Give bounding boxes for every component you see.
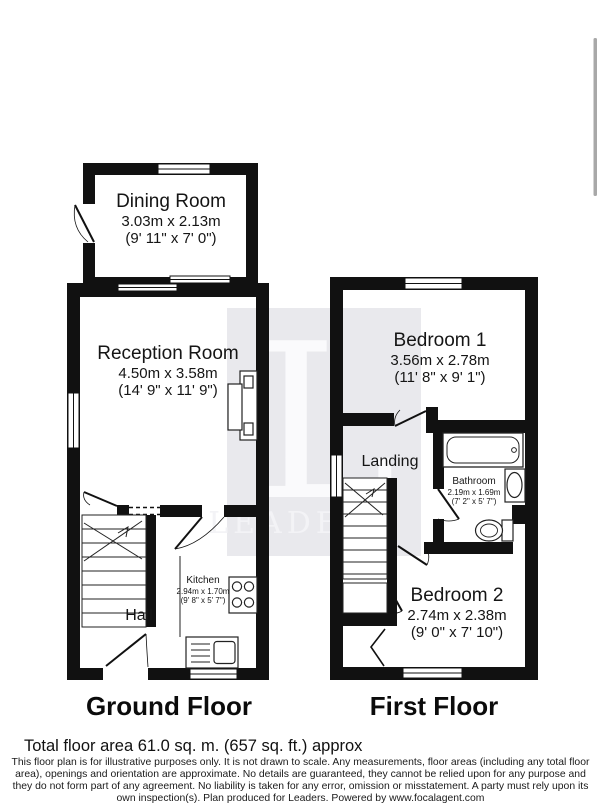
room-imperial: (9' 11" x 7' 0") — [95, 230, 247, 247]
total-floor-area: Total floor area 61.0 sq. m. (657 sq. ft… — [24, 737, 362, 756]
floorplan-page: { "watermark": { "letter": "L", "word": … — [0, 0, 601, 800]
room-metric: 2.74m x 2.38m — [375, 607, 539, 624]
dining-room-label: Dining Room 3.03m x 2.13m (9' 11" x 7' 0… — [95, 191, 247, 247]
room-name: Bedroom 1 — [358, 330, 522, 352]
landing-label: Landing — [352, 453, 428, 471]
room-imperial: (14' 9" x 11' 9") — [83, 382, 253, 399]
room-name: Kitchen — [163, 575, 243, 587]
room-name: Landing — [352, 453, 428, 471]
ground-floor-title: Ground Floor — [59, 691, 279, 722]
kitchen-label: Kitchen 2.94m x 1.70m (9' 8" x 5' 7") — [163, 575, 243, 605]
room-metric: 2.19m x 1.69m — [432, 488, 516, 497]
bedroom1-label: Bedroom 1 3.56m x 2.78m (11' 8" x 9' 1") — [358, 330, 522, 386]
room-imperial: (9' 0" x 7' 10") — [375, 624, 539, 641]
bedroom2-label: Bedroom 2 2.74m x 2.38m (9' 0" x 7' 10") — [375, 585, 539, 641]
room-metric: 3.03m x 2.13m — [95, 213, 247, 230]
room-name: Hall — [114, 607, 164, 625]
room-name: Bedroom 2 — [375, 585, 539, 607]
bathroom-label: Bathroom 2.19m x 1.69m (7' 2" x 5' 7") — [432, 476, 516, 506]
room-imperial: (9' 8" x 5' 7") — [163, 596, 243, 605]
first-floor-title: First Floor — [324, 691, 544, 722]
toilet-icon — [476, 520, 514, 541]
room-metric: 3.56m x 2.78m — [358, 352, 522, 369]
room-name: Dining Room — [95, 191, 247, 213]
room-imperial: (7' 2" x 5' 7") — [432, 497, 516, 506]
reception-room-label: Reception Room 4.50m x 3.58m (14' 9" x 1… — [83, 343, 253, 399]
room-name: Reception Room — [83, 343, 253, 365]
room-imperial: (11' 8" x 9' 1") — [358, 369, 522, 386]
room-metric: 2.94m x 1.70m — [163, 587, 243, 596]
hall-label: Hall — [114, 607, 164, 625]
room-metric: 4.50m x 3.58m — [83, 365, 253, 382]
floorplan-canvas: L LEADERS — [0, 0, 601, 800]
scrollbar-thumb[interactable] — [594, 38, 598, 196]
sink-icon — [186, 637, 238, 668]
bathtub-icon — [443, 433, 523, 467]
room-name: Bathroom — [432, 476, 516, 488]
disclaimer-text: This floor plan is for illustrative purp… — [8, 757, 593, 805]
